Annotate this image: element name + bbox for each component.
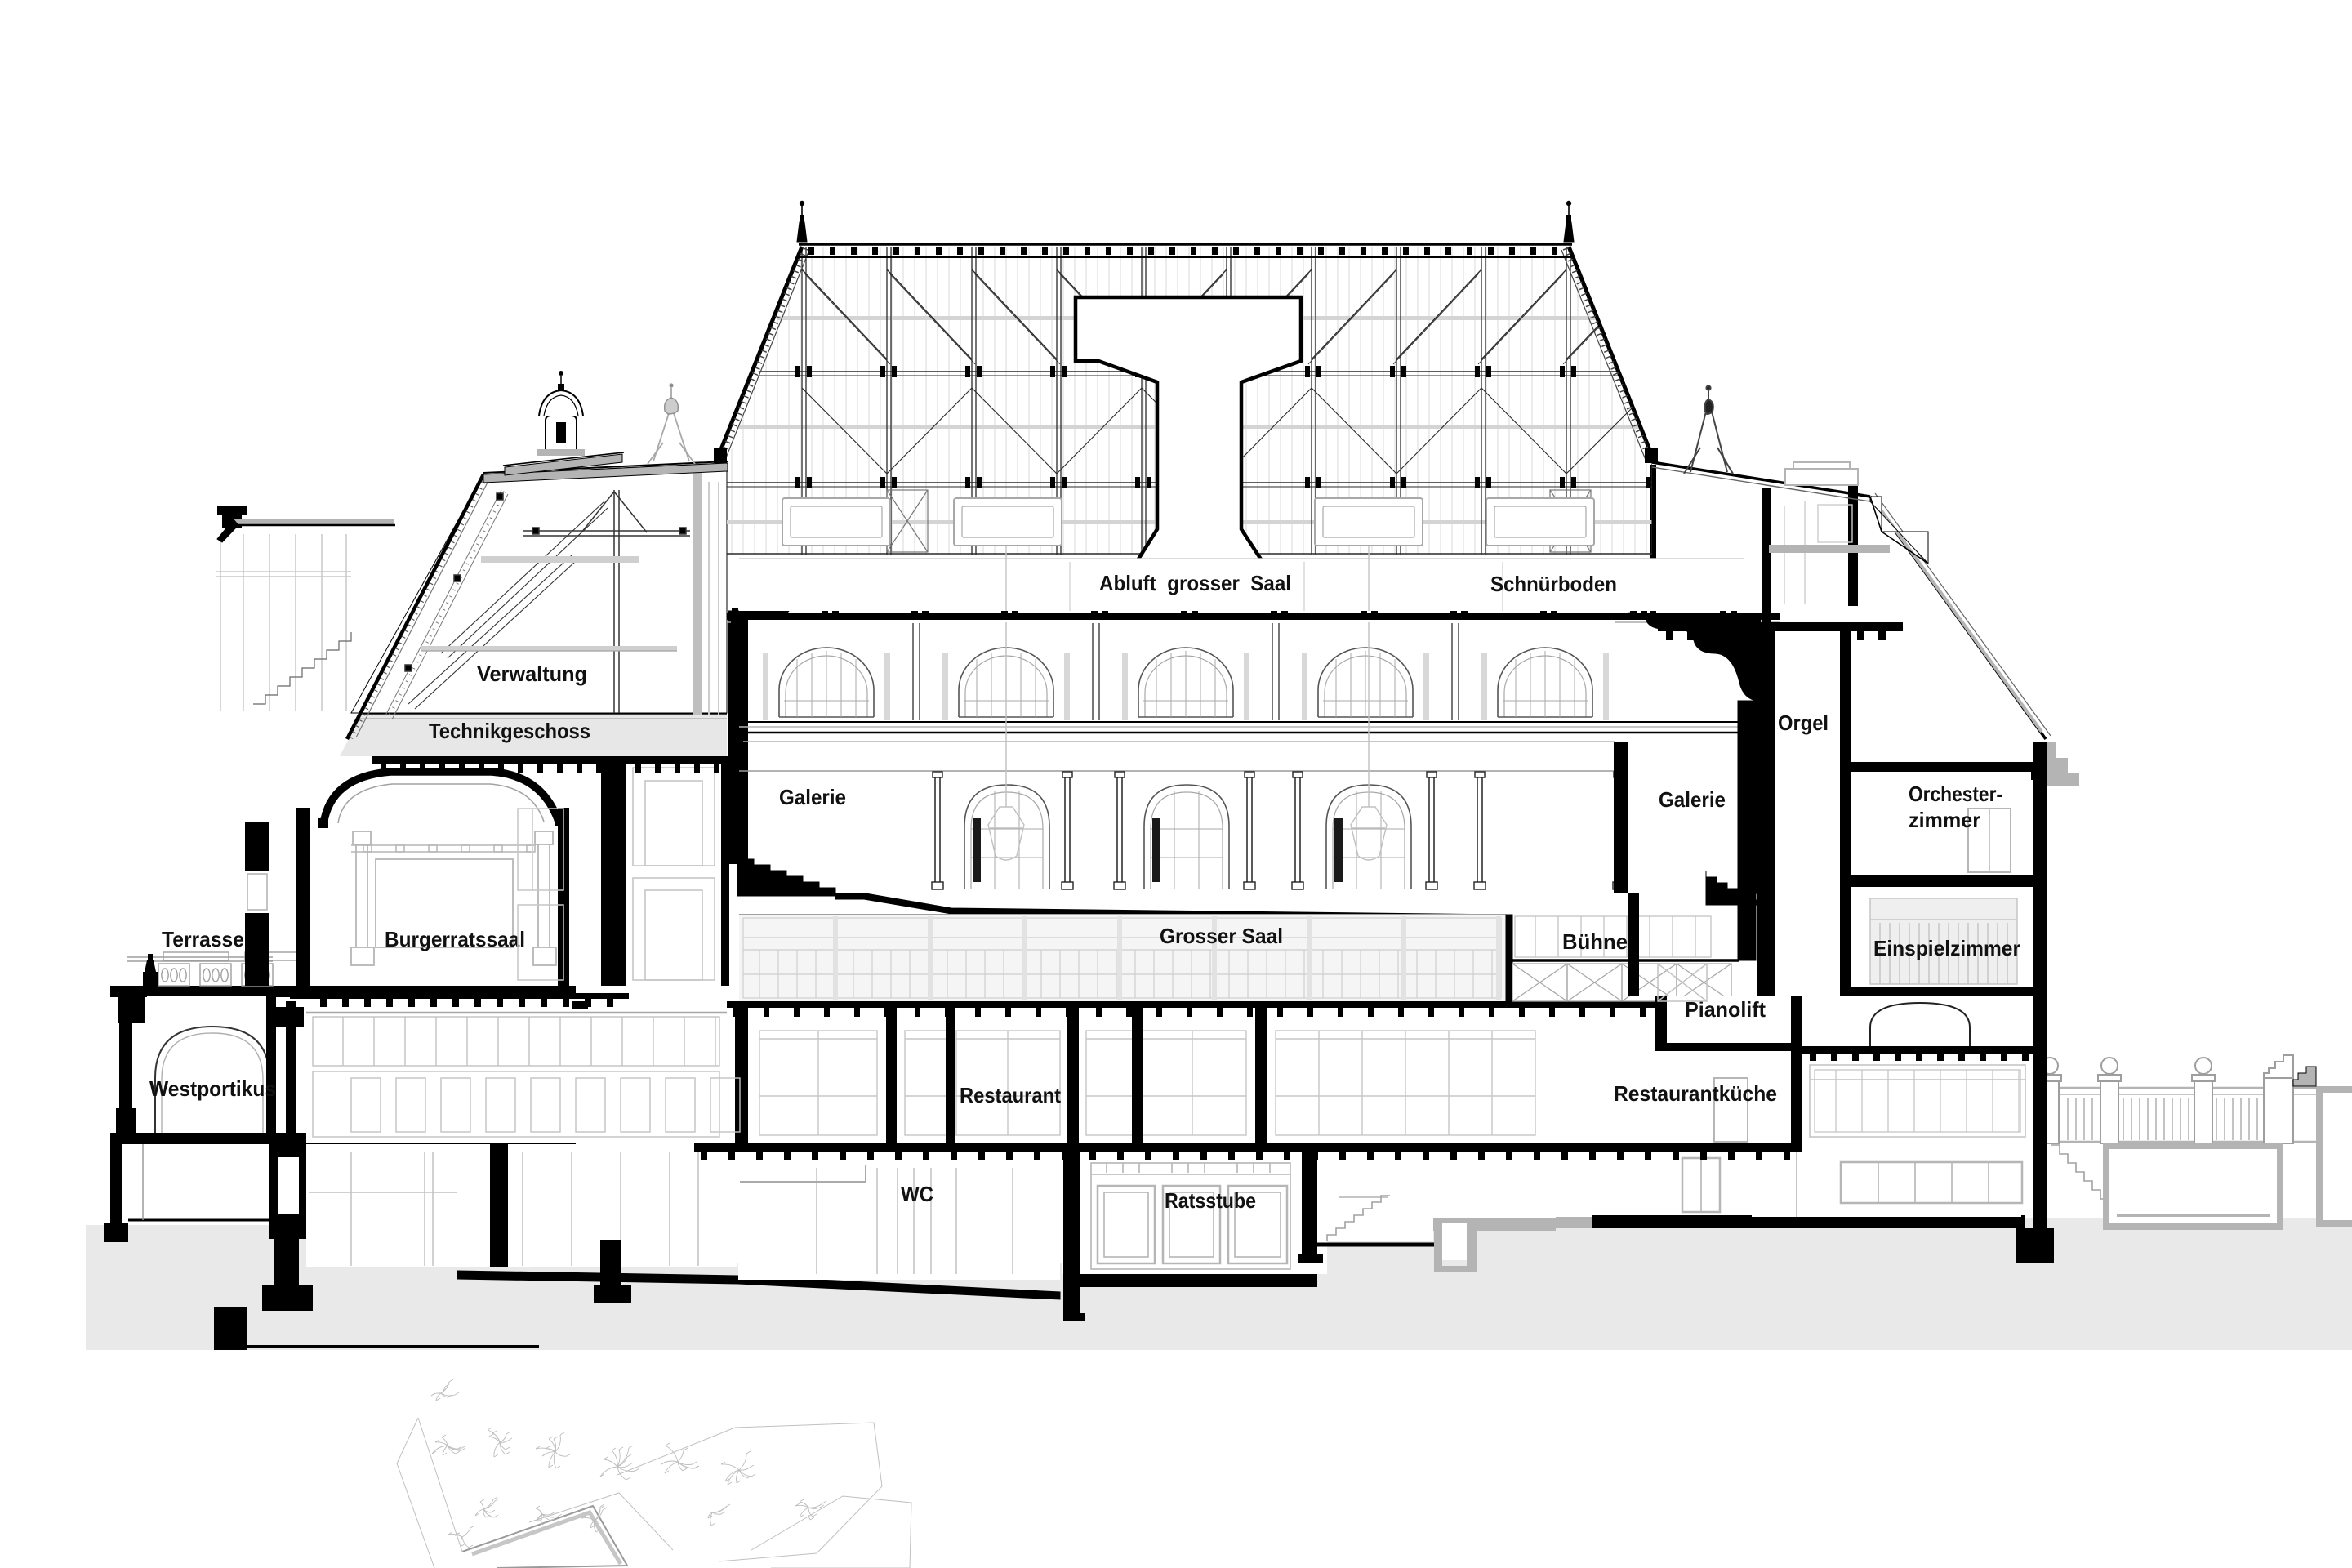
svg-text:Galerie: Galerie: [1659, 787, 1726, 812]
svg-text:Grosser Saal: Grosser Saal: [1160, 924, 1283, 948]
svg-text:Westportikus: Westportikus: [149, 1076, 276, 1101]
svg-text:Technikgeschoss: Technikgeschoss: [429, 719, 590, 743]
svg-text:Galerie: Galerie: [779, 785, 846, 809]
svg-text:Ratsstube: Ratsstube: [1165, 1188, 1256, 1213]
svg-text:zimmer: zimmer: [1909, 808, 1980, 832]
svg-text:Restaurantküche: Restaurantküche: [1614, 1081, 1777, 1106]
svg-text:Bühne: Bühne: [1562, 929, 1628, 954]
svg-text:WC: WC: [901, 1182, 933, 1206]
svg-text:Burgerratssaal: Burgerratssaal: [385, 927, 525, 951]
svg-text:Orgel: Orgel: [1778, 710, 1829, 735]
svg-text:Restaurant: Restaurant: [960, 1083, 1061, 1107]
svg-text:Terrasse: Terrasse: [162, 927, 244, 951]
svg-text:Schnürboden: Schnürboden: [1490, 572, 1617, 596]
svg-text:Verwaltung: Verwaltung: [477, 661, 587, 686]
svg-text:Einspielzimmer: Einspielzimmer: [1873, 936, 2020, 960]
svg-text:Orchester-: Orchester-: [1909, 782, 2002, 806]
svg-text:Abluft grosser Saal: Abluft grosser Saal: [1099, 571, 1291, 595]
